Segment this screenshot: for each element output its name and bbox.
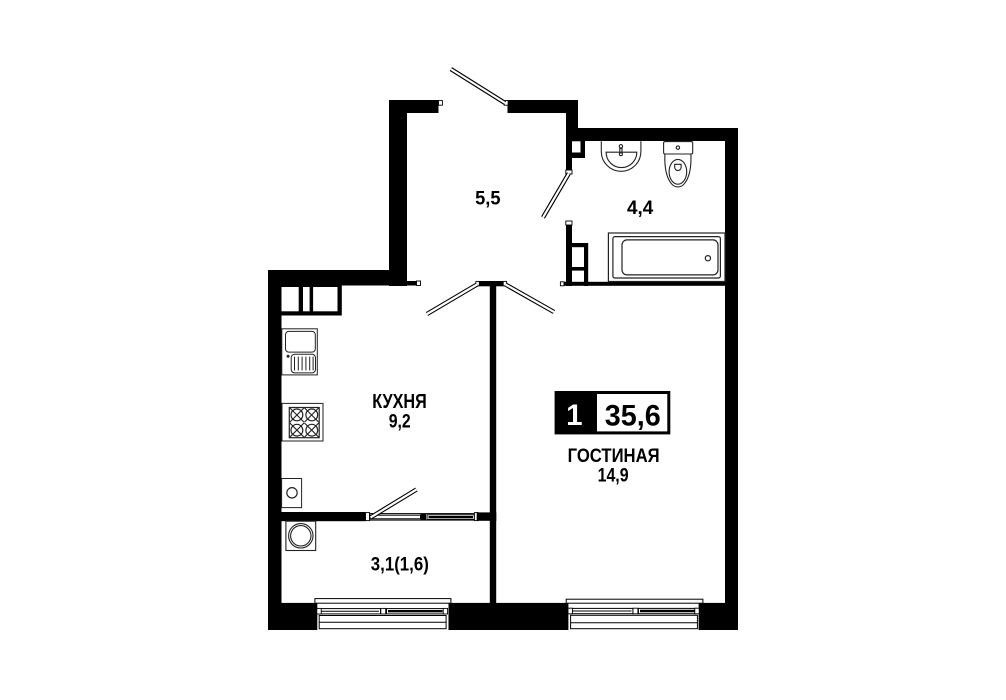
svg-text:3,1(1,6): 3,1(1,6) [371, 554, 429, 576]
svg-text:35,6: 35,6 [605, 400, 661, 433]
svg-text:9,2: 9,2 [389, 411, 411, 433]
svg-text:1: 1 [566, 399, 582, 432]
svg-text:4,4: 4,4 [627, 197, 653, 219]
svg-text:КУХНЯ: КУХНЯ [372, 391, 427, 413]
svg-text:14,9: 14,9 [598, 464, 629, 486]
svg-text:5,5: 5,5 [475, 188, 501, 210]
